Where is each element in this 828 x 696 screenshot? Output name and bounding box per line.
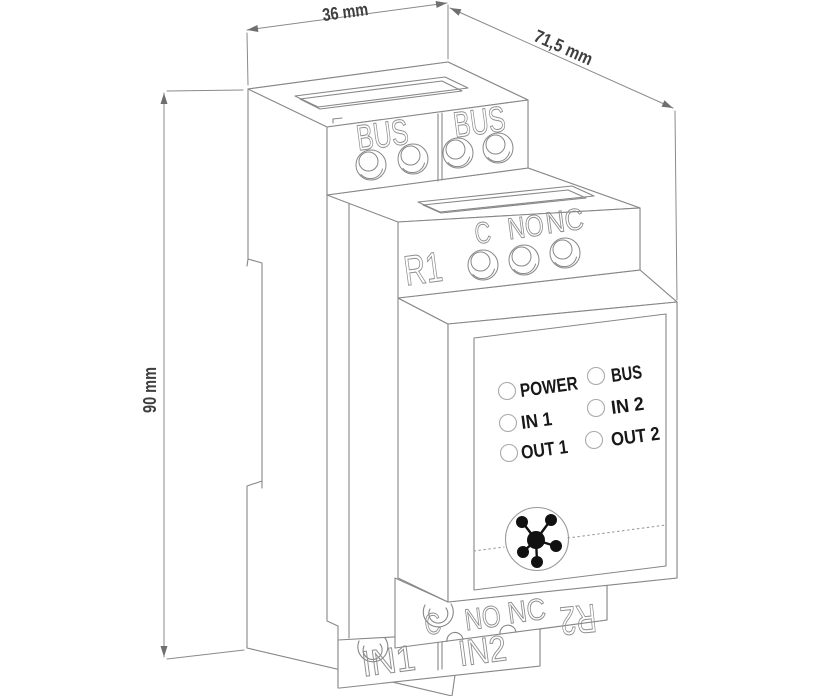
led-label-bus: BUS: [610, 362, 644, 387]
ext-line-width-left: [247, 33, 248, 85]
relay2-contact-nc: NC: [506, 593, 548, 631]
isometric-device-drawing: 36 mm 71,5 mm 90 mm BUS BUS R1 C NO NC R…: [0, 0, 828, 696]
bus-terminal-label-right: BUS: [451, 98, 508, 146]
relay1-contact-nc: NC: [544, 203, 586, 241]
relay2-label: R2: [558, 595, 598, 643]
dim-arrow: [161, 646, 168, 657]
ext-line-depth: [675, 111, 677, 300]
led-label-in2: IN 2: [610, 394, 645, 419]
dim-depth-label: 71,5 mm: [531, 26, 596, 69]
relay1-label: R1: [401, 243, 445, 295]
input1-label: IN1: [359, 637, 418, 685]
input2-label: IN2: [456, 627, 509, 674]
dim-arrow: [436, 1, 447, 8]
led-label-in1: IN 1: [520, 409, 554, 434]
dim-arrow: [161, 93, 168, 104]
relay1-contact-no: NO: [506, 209, 546, 246]
bus-terminal-label-left: BUS: [354, 111, 411, 159]
dim-arrow: [662, 100, 673, 108]
dim-height-label: 90 mm: [140, 367, 160, 413]
dim-arrow: [450, 8, 461, 16]
dim-arrow: [247, 25, 258, 32]
technical-drawing-page: 36 mm 71,5 mm 90 mm BUS BUS R1 C NO NC R…: [0, 0, 828, 696]
ext-line-height-bottom: [167, 650, 244, 659]
dim-width-label: 36 mm: [321, 0, 369, 25]
left-wall-step-detail: [247, 259, 262, 488]
panel-left-flank: [398, 298, 448, 602]
ext-line-height-top: [167, 90, 243, 91]
